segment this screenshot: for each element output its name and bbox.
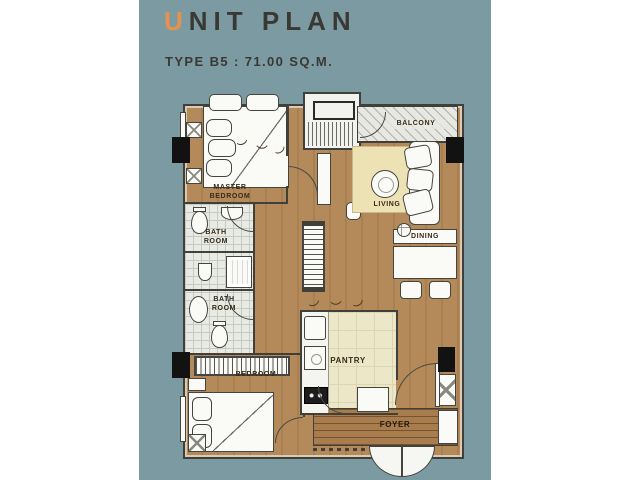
toilet-tank	[193, 207, 206, 212]
foyer-label: FOYER	[370, 420, 420, 430]
balcony-label: BALCONY	[386, 120, 446, 129]
coffee-table	[371, 170, 399, 198]
structural-column	[172, 137, 190, 163]
dining-chair	[429, 281, 451, 299]
balcony-wall	[357, 141, 458, 143]
nightstand	[186, 122, 202, 138]
sofa-cushion	[403, 144, 432, 170]
shoe-cabinet	[438, 410, 458, 444]
fridge-icon	[304, 316, 326, 340]
nightstand	[186, 168, 202, 184]
dining-chair	[400, 281, 422, 299]
wall-segment	[396, 310, 398, 380]
bath-room-1-label: BATH ROOM	[194, 229, 238, 247]
page-title: UNIT PLAN	[164, 6, 357, 37]
blanket-roll	[206, 159, 232, 177]
closet-cap	[302, 221, 325, 226]
threshold-dashes	[313, 448, 367, 451]
master-bedroom-label: MASTER BEDROOM	[198, 184, 262, 202]
toilet-icon	[211, 325, 228, 348]
table-decor	[378, 177, 394, 193]
wall-segment	[253, 204, 255, 353]
structural-column	[446, 137, 464, 163]
bath-divider-wall	[185, 251, 253, 253]
dining-label: DINING	[393, 233, 457, 242]
title-rest: NIT PLAN	[189, 6, 357, 36]
living-label: LIVING	[362, 201, 412, 210]
tv-cabinet	[317, 153, 331, 205]
unit-type-subtitle: TYPE B5 : 71.00 SQ.M.	[165, 54, 333, 69]
title-accent-letter: U	[164, 6, 189, 36]
ac-condenser-unit	[303, 92, 361, 150]
wall-segment	[286, 104, 288, 156]
blanket-roll	[206, 119, 232, 137]
condenser-box	[313, 101, 355, 120]
page-canvas: UNIT PLAN TYPE B5 : 71.00 SQ.M. BALCONY …	[0, 0, 640, 480]
pillow	[209, 94, 242, 111]
hallway-closet	[302, 221, 325, 292]
shower-tray	[226, 256, 252, 288]
structural-column	[438, 347, 455, 372]
sofa-cushion	[406, 168, 434, 193]
dining-table	[393, 246, 457, 279]
pillow	[246, 94, 279, 111]
bedside-table	[188, 378, 206, 391]
pillow	[192, 397, 212, 421]
wall-segment	[185, 202, 288, 204]
bed-blanket-fold	[213, 395, 273, 451]
structural-column	[172, 352, 190, 378]
small-sink-icon	[198, 263, 212, 281]
blanket-roll	[208, 139, 236, 157]
wall-segment	[300, 413, 398, 415]
bath-room-2-label: BATH ROOM	[202, 296, 246, 314]
window	[180, 396, 186, 442]
pantry-label: PANTRY	[318, 356, 378, 366]
pantry-cart	[357, 387, 389, 412]
bath-divider-wall	[185, 289, 253, 291]
closet-cap	[302, 287, 325, 292]
ac-louver-hatch	[308, 122, 356, 146]
wall-segment	[185, 353, 305, 355]
corner-cabinet	[188, 434, 206, 452]
bedroom-label: BEDROOM	[226, 371, 286, 380]
